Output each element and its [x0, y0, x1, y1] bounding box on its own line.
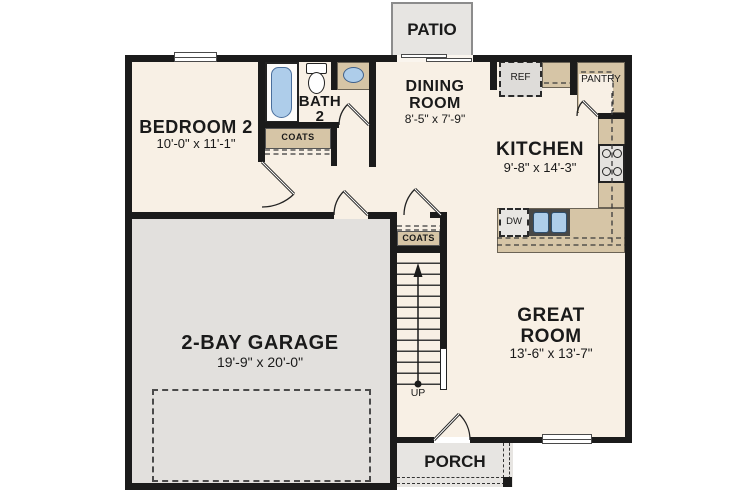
stair-rail — [440, 348, 447, 390]
porch-dashed-edge-inner — [397, 443, 504, 478]
wall — [490, 55, 497, 90]
pantry-label: PANTRY — [577, 74, 625, 85]
room-dims: 9'-8" x 14'-3" — [480, 161, 600, 175]
kitchen-counter-top — [542, 62, 571, 88]
room-name: BEDROOM 2 — [136, 118, 256, 137]
patio-label: PATIO — [393, 21, 471, 39]
wall — [598, 113, 632, 119]
bath-sink — [343, 67, 364, 83]
window-pane — [543, 439, 591, 440]
refrigerator: REF — [499, 61, 542, 97]
wall — [368, 212, 397, 219]
kitchen-sink — [529, 209, 570, 236]
room-dims: 19'-9" x 20'-0" — [155, 355, 365, 370]
wall — [390, 437, 434, 443]
wall — [369, 55, 376, 167]
toilet-bowl — [308, 72, 325, 94]
wall — [132, 212, 334, 219]
burner-icon — [613, 167, 622, 176]
sliding-door-panel — [426, 58, 472, 62]
room-name: 2-BAY GARAGE — [155, 333, 365, 355]
window-pane — [175, 57, 216, 58]
floor-plan: PATIO PORCH REF DW COATS COA — [0, 0, 750, 500]
room-dims: 10'-0" x 11'-1" — [136, 137, 256, 151]
dining-label: DINING ROOM 8'-5" x 7'-9" — [383, 78, 487, 125]
coats-label: COATS — [398, 234, 439, 244]
room-name: GREAT ROOM — [491, 306, 611, 347]
coats-closet-hall: COATS — [265, 128, 331, 149]
sink-basin — [551, 212, 567, 233]
coats-closet-stairs: COATS — [397, 231, 440, 246]
coats-label: COATS — [266, 133, 330, 143]
patio-area: PATIO — [391, 2, 473, 57]
room-dims: 13'-6" x 13'-7" — [491, 347, 611, 362]
wall — [390, 212, 397, 490]
dw-label: DW — [501, 217, 527, 227]
window — [542, 434, 592, 444]
garage-label: 2-BAY GARAGE 19'-9" x 20'-0" — [155, 333, 365, 370]
garage-door-outline — [152, 389, 371, 482]
wall — [331, 62, 337, 90]
ref-label: REF — [501, 73, 540, 84]
wall — [125, 55, 132, 490]
burner-icon — [602, 167, 611, 176]
wall — [258, 62, 265, 162]
bathtub — [271, 67, 292, 118]
stairs-up-label: UP — [403, 387, 433, 399]
bath-vanity — [337, 62, 370, 90]
wall — [440, 212, 447, 348]
greatroom-label: GREAT ROOM 13'-6" x 13'-7" — [491, 306, 611, 362]
wall — [430, 212, 447, 218]
room-name: BATH 2 — [297, 94, 343, 124]
staircase — [397, 253, 440, 385]
sink-basin — [533, 212, 549, 233]
stove — [598, 144, 625, 183]
porch-post — [503, 477, 512, 487]
burner-icon — [613, 149, 622, 158]
wall — [397, 246, 447, 253]
window — [174, 52, 217, 62]
wall — [125, 483, 397, 490]
dishwasher: DW — [499, 208, 529, 237]
room-name: KITCHEN — [480, 140, 600, 161]
room-dims: 8'-5" x 7'-9" — [383, 113, 487, 126]
bedroom2-label: BEDROOM 2 10'-0" x 11'-1" — [136, 118, 256, 151]
burner-icon — [602, 149, 611, 158]
tub-niche — [265, 62, 299, 123]
room-name: DINING ROOM — [383, 78, 487, 113]
wall — [331, 122, 337, 166]
kitchen-label: KITCHEN 9'-8" x 14'-3" — [480, 140, 600, 175]
bath2-label: BATH 2 — [297, 94, 343, 124]
wall — [570, 55, 577, 95]
